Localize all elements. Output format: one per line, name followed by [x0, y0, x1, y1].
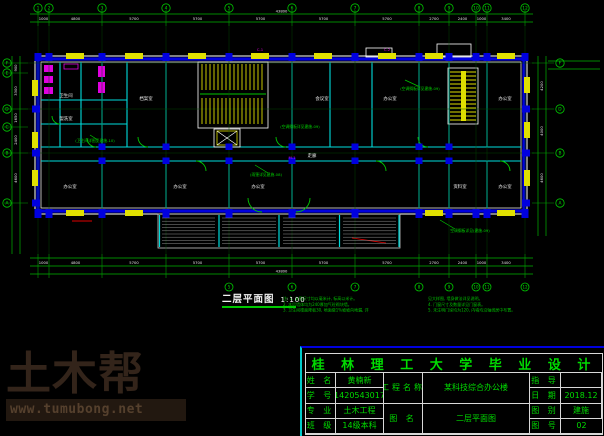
dim-text: 4600: [14, 173, 18, 183]
grid-number: 6: [291, 6, 294, 12]
dim-text: 2700: [429, 261, 439, 265]
dim-text: 1000: [39, 17, 49, 21]
dim-text: 3400: [501, 261, 511, 265]
dim-text: 4000: [540, 126, 544, 136]
room-label: 资料室: [453, 183, 467, 190]
dim-text: 4800: [71, 17, 81, 21]
window-symbol: [497, 210, 515, 216]
column: [163, 158, 170, 165]
major-label: 专 业: [306, 404, 336, 419]
dim-text: 1650: [14, 113, 18, 123]
window-symbol: [125, 53, 143, 59]
dim-text: 5700: [129, 261, 139, 265]
column: [522, 150, 530, 157]
floor-plan-drawing: 12345678910111256789101112FEDCBAFDBA1000…: [0, 0, 604, 340]
id-value: 1420543017: [336, 388, 384, 403]
dim-text: 3300: [14, 86, 18, 96]
major-value: 土木工程: [336, 404, 384, 419]
room-label: 卫生间: [59, 92, 72, 99]
column: [352, 158, 359, 165]
window-symbol: [188, 53, 206, 59]
dim-text: 5700: [319, 261, 329, 265]
room-label: 档案室: [139, 95, 153, 102]
dim-text: 2400: [458, 17, 468, 21]
title-block: 桂 林 理 工 大 学 毕 业 设 计 姓 名 黄楠新 工程名称 某科技综合办公…: [300, 346, 604, 436]
date-value: 2018.12: [561, 388, 602, 403]
column: [416, 53, 423, 61]
dim-text: 1000: [477, 261, 487, 265]
column: [352, 53, 359, 61]
window-symbol: [425, 53, 443, 59]
cad-drawing-sheet: 12345678910111256789101112FEDCBAFDBA1000…: [0, 0, 604, 436]
dim-text: 5700: [319, 17, 329, 21]
dim-text: 5700: [193, 261, 203, 265]
window-symbol: [32, 170, 38, 186]
grid-number: 3: [101, 6, 104, 12]
column: [226, 209, 233, 218]
dim-text: 2400: [14, 135, 18, 145]
room-label: 办公室: [498, 95, 512, 102]
column: [446, 209, 453, 218]
grid-number: 4: [165, 6, 168, 12]
stair-main: [198, 62, 268, 128]
dim-text: 2400: [458, 261, 468, 265]
column: [446, 53, 453, 61]
column: [289, 144, 296, 151]
window-symbol: [66, 53, 84, 59]
dim-text: 5700: [382, 17, 392, 21]
column: [522, 209, 529, 218]
column: [416, 158, 423, 165]
window-symbol: [524, 77, 530, 93]
window-symbol: [425, 210, 443, 216]
plan-caption-text: 二层平面图: [222, 294, 275, 305]
column: [99, 158, 106, 165]
door-arcs: [52, 116, 510, 212]
column: [473, 209, 480, 218]
grid-letter: D: [5, 107, 9, 113]
annotation-text: (空调搁板详见建施-09): [400, 86, 440, 91]
column: [163, 53, 170, 61]
window-symbol: [32, 132, 38, 148]
caption-underline: [222, 306, 296, 308]
grid-number: 5: [228, 6, 231, 12]
note-line: 4. 门窗尺寸及数量详见门窗表。: [428, 301, 485, 307]
dim-text: 5700: [256, 17, 266, 21]
grid-number: 9: [448, 285, 451, 290]
advisor-label: 指 导: [530, 373, 561, 388]
grid-number: 1: [37, 6, 40, 12]
grid-number: 11: [484, 6, 490, 12]
dim-text: 4200: [540, 81, 544, 91]
category-value: 建施: [561, 404, 602, 419]
dim-text: 5700: [256, 261, 266, 265]
mark-text: M-1: [288, 155, 296, 160]
grid-letter: F: [6, 61, 9, 67]
grid-letter: E: [6, 71, 9, 77]
column: [416, 209, 423, 218]
project-label: 工程名称: [384, 373, 423, 404]
title-block-table: 桂 林 理 工 大 学 毕 业 设 计 姓 名 黄楠新 工程名称 某科技综合办公…: [305, 353, 603, 435]
column: [522, 53, 529, 61]
dim-text: 1000: [477, 17, 487, 21]
dim-text: 5700: [382, 261, 392, 265]
grid-letter: D: [558, 107, 562, 113]
name-value: 黄楠新: [336, 373, 384, 388]
dim-total: 43800: [276, 9, 288, 13]
column: [352, 144, 359, 151]
room-label: 办公室: [173, 183, 187, 190]
window-symbol: [32, 80, 38, 96]
date-label: 日 期: [530, 388, 561, 403]
grid-number: 12: [522, 285, 528, 290]
column: [99, 209, 106, 218]
column: [32, 150, 40, 157]
room-label: 办公室: [63, 183, 77, 190]
dim-text: 2700: [429, 17, 439, 21]
watermark: 土木帮 www.tumubong.net: [6, 350, 186, 421]
note-line: 见大样图, 墙身做法详见说明。: [428, 295, 483, 301]
window-symbol: [378, 53, 396, 59]
grid-number: 8: [418, 285, 421, 290]
dim-text: 4600: [540, 173, 544, 183]
column: [484, 209, 491, 218]
column: [289, 53, 296, 61]
grid-number: 7: [354, 6, 357, 12]
watermark-url: www.tumubong.net: [6, 399, 186, 421]
dim-text: 4800: [71, 261, 81, 265]
grid-letter: B: [5, 151, 8, 157]
grid-number: 12: [522, 6, 528, 12]
column: [99, 53, 106, 61]
column: [484, 53, 491, 61]
grid-number: 11: [484, 285, 490, 290]
window-symbol: [66, 210, 84, 216]
column: [46, 53, 53, 61]
column: [289, 209, 296, 218]
dim-text: 900: [14, 64, 18, 72]
grid-number: 10: [473, 285, 479, 290]
mark-text: C-1: [257, 47, 264, 52]
window-symbol: [125, 210, 143, 216]
plan-caption: 二层平面图1:100: [222, 291, 306, 308]
annotation-text: (雨篷详见建施-08): [250, 172, 282, 177]
grid-number: 7: [354, 285, 357, 290]
grid-letter: C: [5, 125, 8, 131]
drawing-value: 二层平面图: [423, 404, 530, 435]
grid-number: 9: [448, 6, 451, 12]
plan-caption-scale: 1:100: [281, 296, 306, 304]
grid-letter: A: [5, 201, 8, 207]
column: [32, 106, 40, 113]
column: [226, 144, 233, 151]
grid-letter: A: [558, 201, 561, 207]
dim-text: 1000: [39, 261, 49, 265]
room-label: 办公室: [383, 95, 397, 102]
column: [446, 158, 453, 165]
toilet-fixtures: [44, 64, 105, 94]
window-symbol: [497, 53, 515, 59]
window-symbol: [314, 53, 332, 59]
room-label: 办公室: [498, 183, 512, 190]
window-symbol: [524, 122, 530, 138]
column: [99, 144, 106, 151]
drawing-label: 图 名: [384, 404, 423, 435]
dim-text: 5700: [193, 17, 203, 21]
mark-text: C-2: [384, 47, 391, 52]
window-symbol: [524, 170, 530, 186]
room-label: 盥洗室: [59, 115, 73, 122]
class-label: 班 级: [306, 419, 336, 434]
name-label: 姓 名: [306, 373, 336, 388]
column: [35, 209, 42, 218]
annotation-text: (空调搁板详见建施-09): [280, 124, 320, 129]
column: [416, 144, 423, 151]
category-label: 图 别: [530, 404, 561, 419]
room-label: 办公室: [251, 183, 265, 190]
column: [352, 209, 359, 218]
titleblock-title: 桂 林 理 工 大 学 毕 业 设 计: [306, 354, 602, 373]
column: [473, 53, 480, 61]
dim-text: 3400: [501, 17, 511, 21]
note-line: 5. 未注明门垛均为120, 内墙均沿轴线居中布置。: [428, 307, 515, 313]
annotation-leaders: [90, 80, 455, 229]
column: [46, 209, 53, 218]
grid-number: 6: [291, 285, 294, 290]
window-symbol: [251, 53, 269, 59]
advisor-value: [561, 373, 602, 388]
annotation-text: 空调搁板详见(建施-09): [450, 228, 490, 233]
project-value: 某科技综合办公楼: [423, 373, 530, 404]
class-value: 14级本科: [336, 419, 384, 434]
grid-number: 8: [418, 6, 421, 12]
column: [446, 144, 453, 151]
watermark-brand: 土木帮: [6, 350, 186, 397]
room-label: 会议室: [315, 95, 329, 102]
grid-letter: B: [558, 151, 561, 157]
column: [522, 106, 530, 113]
dim-text: 5700: [129, 17, 139, 21]
column: [163, 144, 170, 151]
room-label: 走廊: [308, 152, 317, 159]
column: [226, 53, 233, 61]
grid-number: 10: [473, 6, 479, 12]
dim-total: 43800: [276, 269, 288, 273]
column: [163, 209, 170, 218]
number-label: 图 号: [530, 419, 561, 434]
grid-number: 2: [48, 6, 51, 12]
annotation-text: (卫生间详图见建施-10): [75, 138, 115, 143]
column: [226, 158, 233, 165]
id-label: 学 号: [306, 388, 336, 403]
column: [35, 53, 42, 61]
column: [522, 200, 530, 207]
number-value: 02: [561, 419, 602, 434]
grid-number: 5: [228, 285, 231, 290]
column: [32, 200, 40, 207]
grid-letter: F: [559, 61, 562, 67]
